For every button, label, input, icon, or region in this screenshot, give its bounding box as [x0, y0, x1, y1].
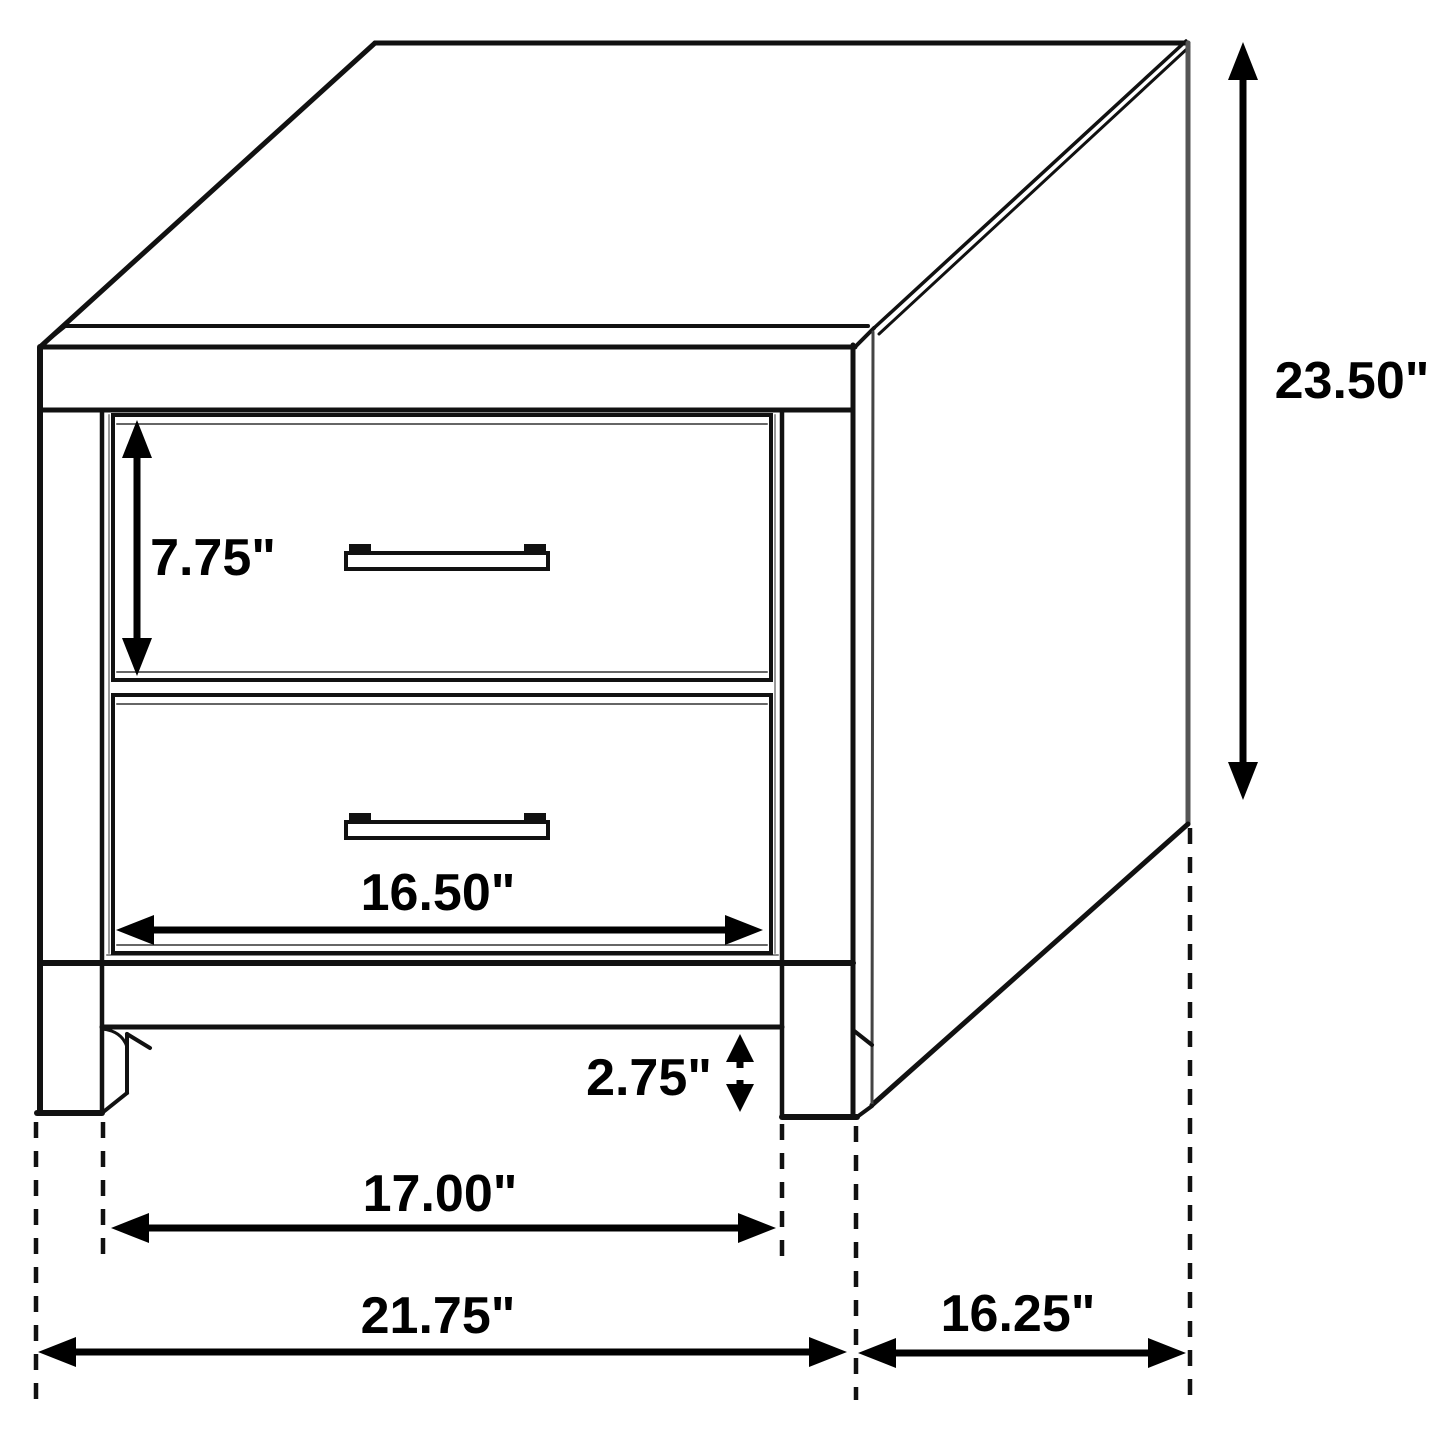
left-apron-slant	[127, 1034, 150, 1048]
nightstand-dimension-diagram: 7.75" 23.50" 16.50" 2.75" 17.00" 21.75" …	[0, 0, 1445, 1445]
dimension-label-overall-width: 21.75"	[361, 1287, 516, 1345]
arrowhead-down-icon	[726, 1084, 754, 1112]
arrowhead-left-icon	[858, 1338, 896, 1368]
handle-bar-icon	[346, 553, 548, 569]
bottom-drawer-handle	[346, 813, 548, 838]
arrowhead-up-icon	[1228, 42, 1258, 80]
top-right-slant-edge-outer	[874, 41, 1186, 328]
arrowhead-down-icon	[122, 638, 152, 676]
dimension-arrow-drawer-height	[122, 420, 152, 676]
dimension-label-drawer-height: 7.75"	[150, 529, 276, 587]
dimension-label-leg-spacing: 17.00"	[363, 1165, 518, 1223]
diagram-canvas: 7.75" 23.50" 16.50" 2.75" 17.00" 21.75" …	[0, 0, 1445, 1445]
right-foot-side-bottom	[857, 1106, 872, 1117]
dimension-labels: 7.75" 23.50" 16.50" 2.75" 17.00" 21.75" …	[150, 352, 1429, 1345]
right-apron-slant	[853, 1030, 872, 1045]
arrowhead-left-icon	[111, 1213, 149, 1243]
left-apron-arc	[102, 1029, 127, 1047]
side-panel	[872, 43, 1188, 1105]
top-left-slant-edge	[40, 43, 375, 347]
arrowhead-right-icon	[738, 1213, 776, 1243]
dimension-label-leg-height: 2.75"	[586, 1049, 712, 1107]
arrowhead-up-icon	[122, 420, 152, 458]
dimension-arrow-leg-height	[726, 1034, 754, 1112]
dimension-label-overall-height: 23.50"	[1275, 352, 1430, 410]
arrowhead-right-icon	[1148, 1338, 1186, 1368]
arrowhead-down-icon	[1228, 762, 1258, 800]
arrowhead-left-icon	[116, 915, 154, 945]
front-frame	[40, 345, 853, 1117]
top-rim-right-bevel	[855, 328, 874, 347]
legs	[37, 1029, 872, 1117]
top-right-slant-edge-inner	[879, 47, 1189, 334]
dimension-label-overall-depth: 16.25"	[941, 1285, 1096, 1343]
top-face	[40, 41, 1189, 347]
side-bottom-slant-edge	[872, 824, 1188, 1105]
arrowhead-up-icon	[726, 1034, 754, 1062]
top-drawer-handle	[346, 544, 548, 569]
top-rim-left-bevel	[40, 326, 66, 347]
drawer-handles	[346, 544, 548, 838]
arrowhead-right-icon	[809, 1337, 847, 1367]
side-front-rim-edge	[872, 332, 873, 1105]
arrowhead-left-icon	[38, 1337, 76, 1367]
dimension-label-drawer-width: 16.50"	[361, 864, 516, 922]
left-foot-side-bottom	[102, 1093, 127, 1113]
dimension-arrow-overall-height	[1228, 42, 1258, 800]
arrowhead-right-icon	[725, 915, 763, 945]
handle-bar-icon	[346, 822, 548, 838]
